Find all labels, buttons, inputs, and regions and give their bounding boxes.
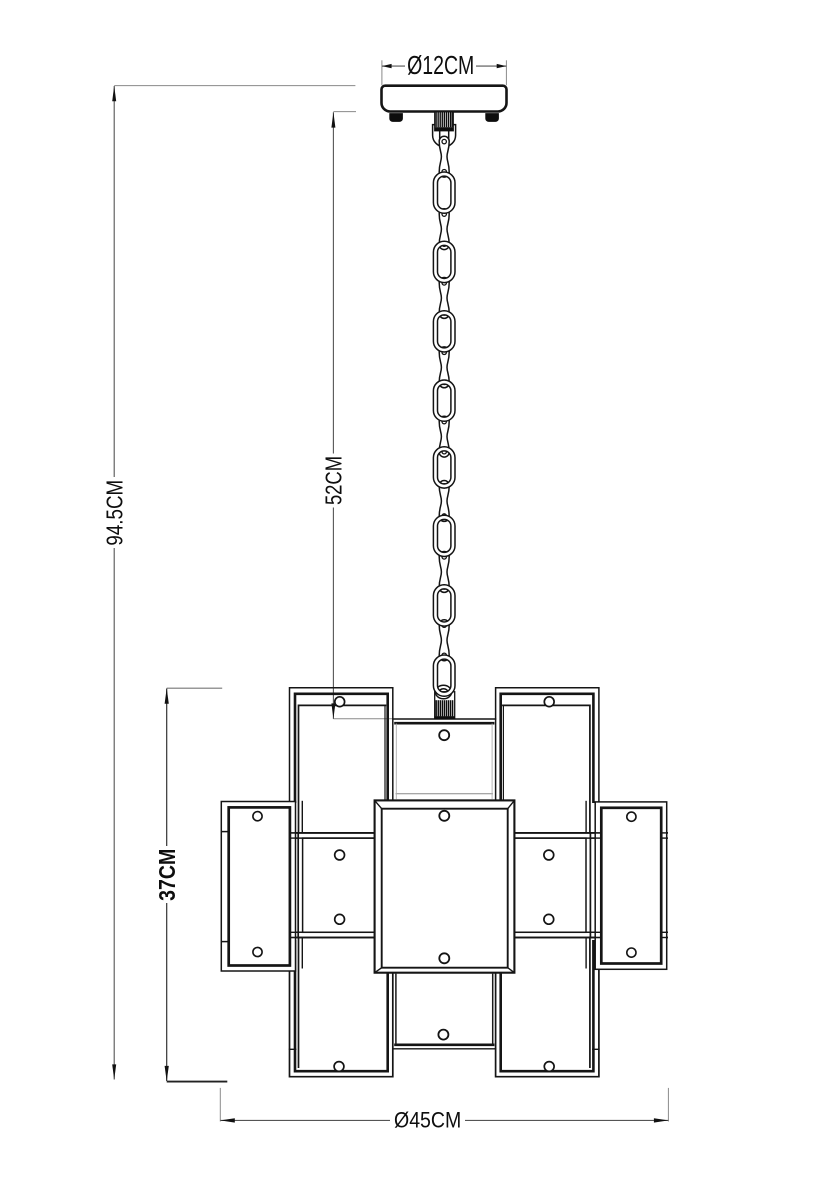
svg-text:Ø45CM: Ø45CM	[394, 1107, 461, 1132]
svg-text:37CM: 37CM	[154, 849, 180, 901]
svg-text:94.5CM: 94.5CM	[101, 480, 127, 546]
svg-text:52CM: 52CM	[321, 456, 347, 505]
svg-text:Ø12CM: Ø12CM	[407, 52, 474, 80]
